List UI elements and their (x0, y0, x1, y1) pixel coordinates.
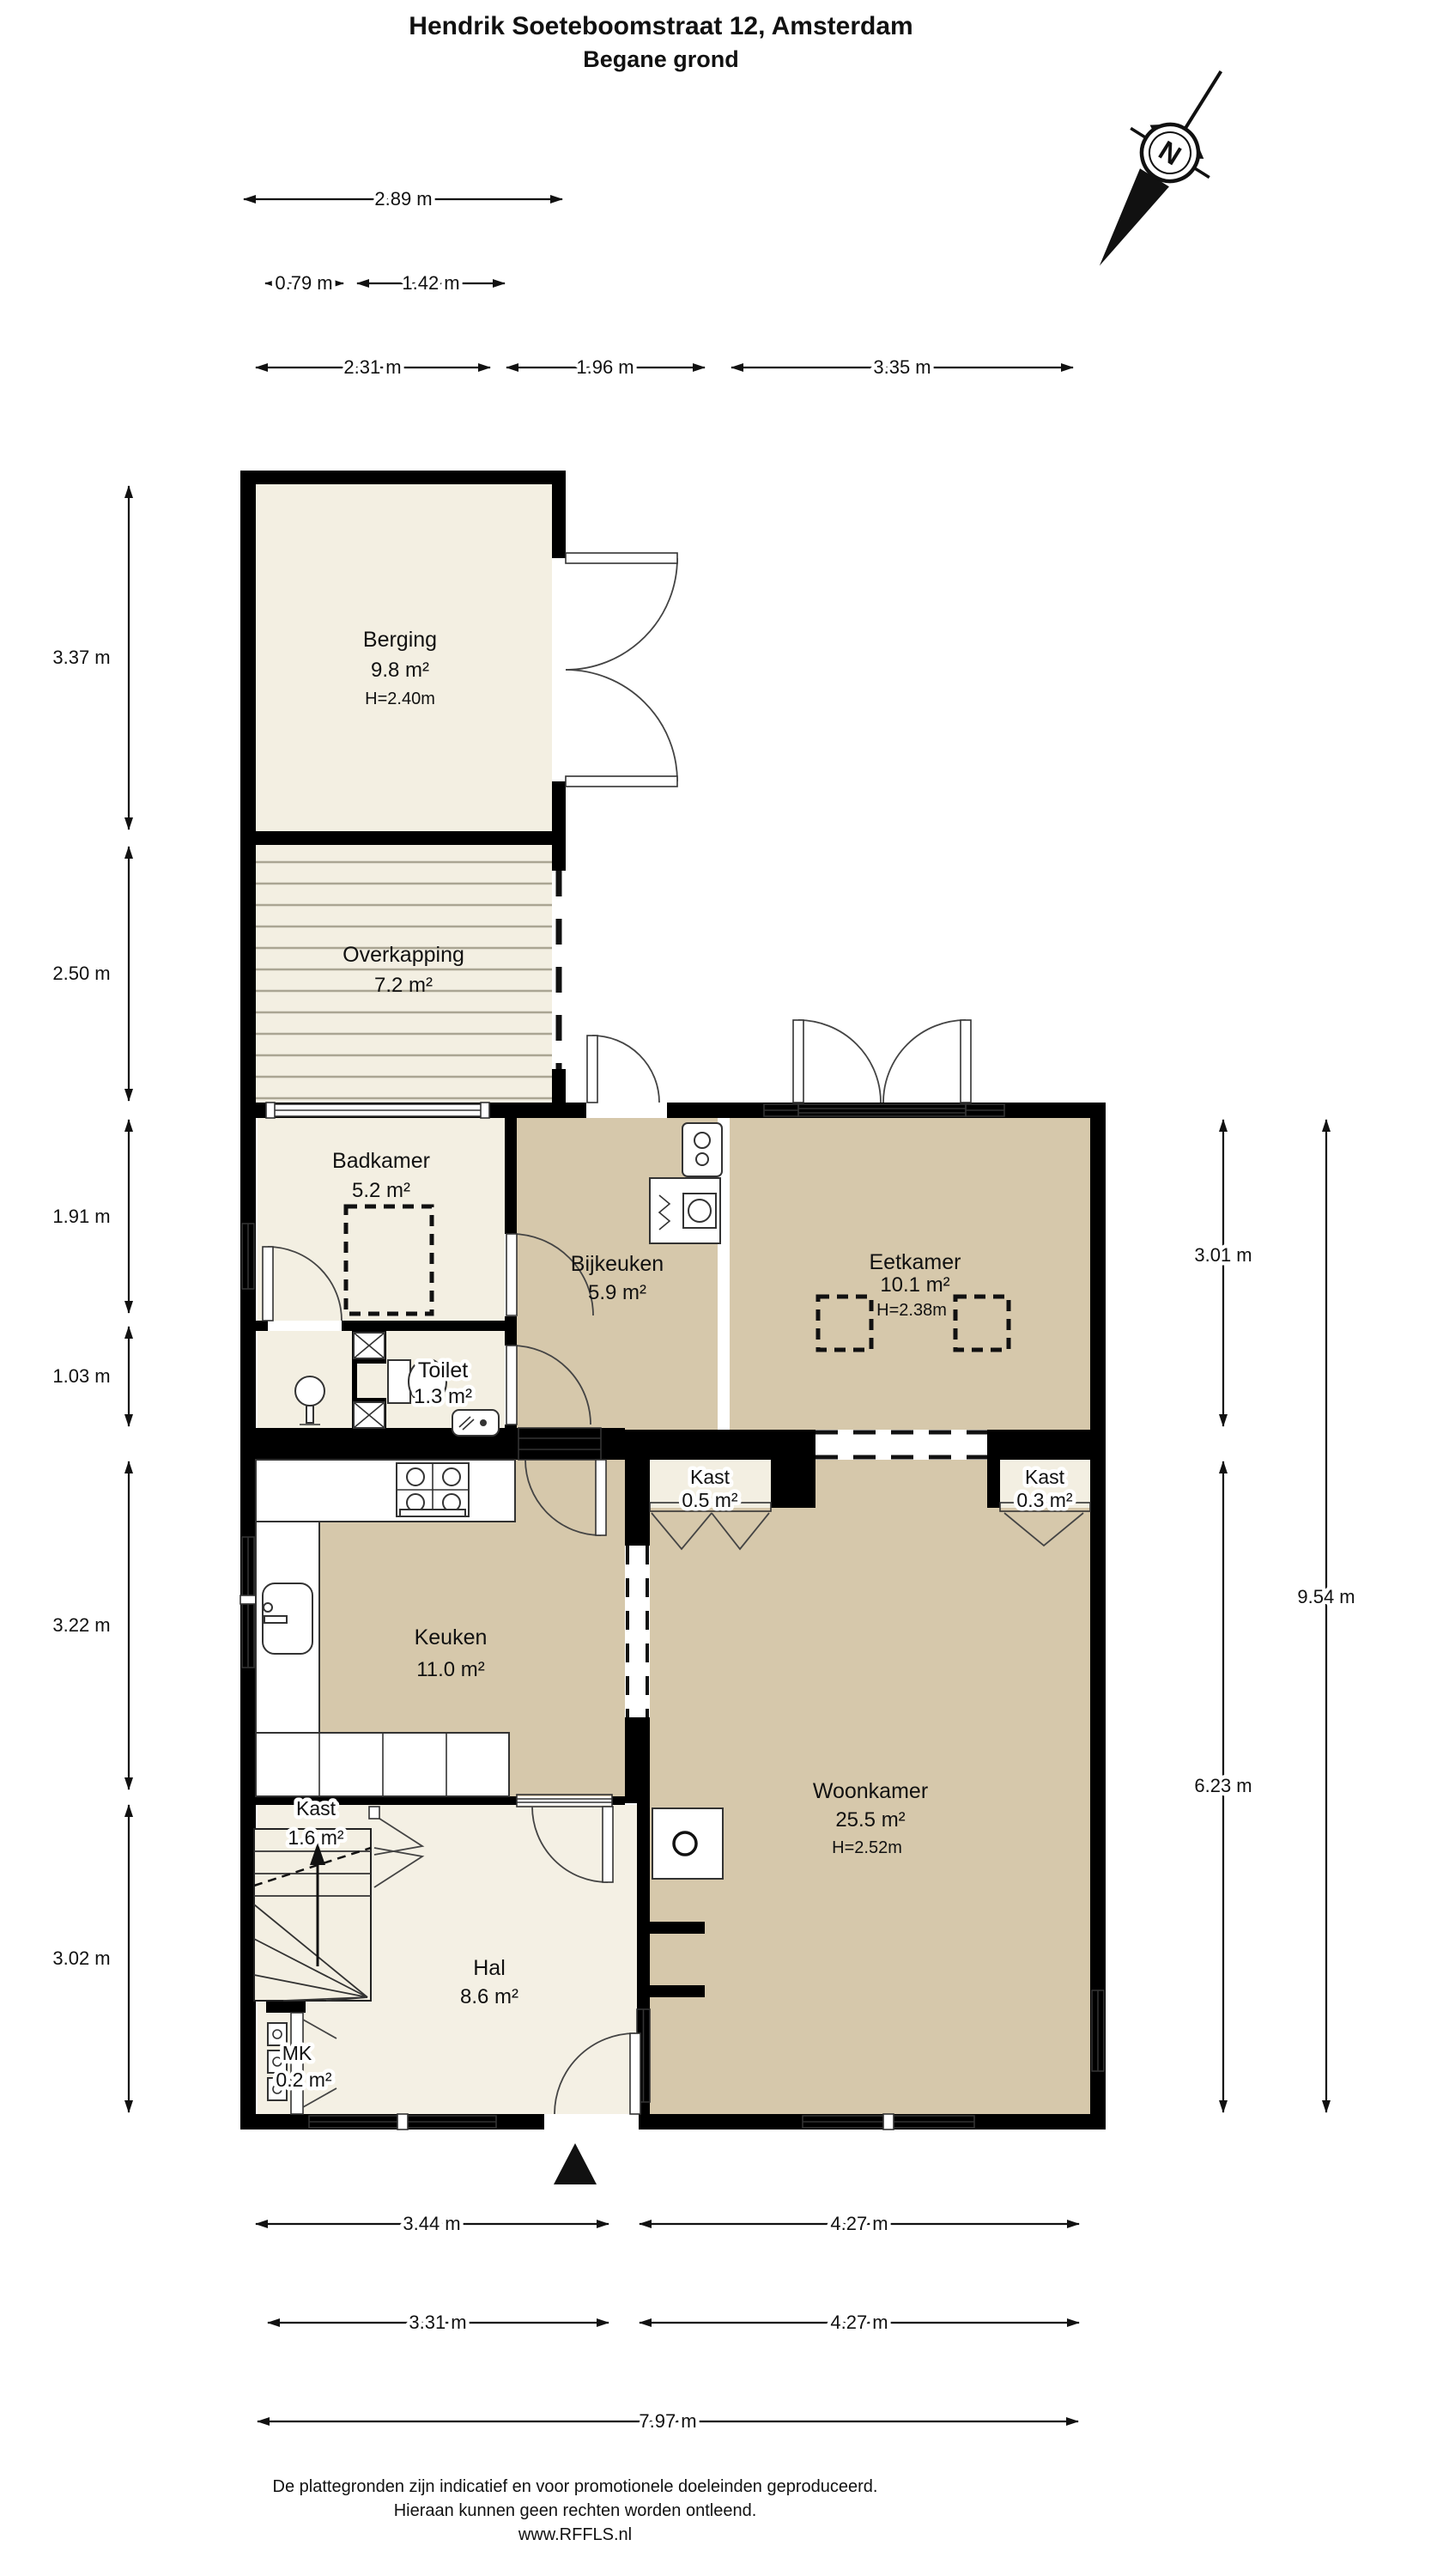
footer: De plattegronden zijn indicatief en voor… (273, 2477, 878, 2544)
dim-label: 3.35 m (873, 356, 931, 378)
dim-label: 3.22 m (52, 1614, 110, 1636)
berging-floor (256, 484, 552, 831)
door-sill (517, 1795, 612, 1807)
dim-label: 0.79 m (275, 272, 332, 294)
hal-area-label: 8.6 m² (460, 1985, 518, 2008)
wall-segment (771, 1460, 815, 1508)
berging-area-label: 9.8 m² (371, 659, 429, 682)
dim-label: 3.02 m (52, 1947, 110, 1969)
sink-icon (263, 1583, 312, 1654)
meterkast-area-label: 0.2 m² (276, 2069, 332, 2091)
eetkamer-area-label: 10.1 m² (880, 1273, 949, 1297)
badkamer-name-label: Badkamer (332, 1149, 430, 1173)
dim-label: 2.50 m (52, 963, 110, 984)
door-swing (587, 1036, 659, 1103)
dim-label: 1.96 m (576, 356, 634, 378)
wall-stub (650, 1985, 705, 1997)
kast-woonkamer-area-label: 0.3 m² (1016, 1489, 1073, 1511)
wall-segment (612, 1796, 625, 1805)
woonkamer-area-label: 25.5 m² (835, 1808, 905, 1832)
french-doors-eetkamer (793, 1020, 971, 1103)
window (266, 1103, 489, 1118)
footer-disclaimer-line1: De plattegronden zijn indicatief en voor… (273, 2477, 878, 2496)
front-door-opening (544, 2114, 639, 2129)
footer-website: www.RFFLS.nl (518, 2525, 632, 2544)
dim-label: 1.42 m (402, 272, 459, 294)
kast-woonkamer-name-label: Kast (1025, 1466, 1065, 1488)
kast-keuken-name-label: Kast (690, 1466, 731, 1488)
wall-segment (987, 1460, 1000, 1508)
double-door-berging (566, 553, 677, 787)
berging-height-label: H=2.40m (365, 690, 435, 708)
badkamer-area-label: 5.2 m² (352, 1179, 410, 1202)
kast-keuken-area-label: 0.5 m² (682, 1489, 738, 1511)
overkapping-area-label: 7.2 m² (374, 974, 433, 997)
counter (256, 1460, 515, 1522)
stairs (254, 1829, 371, 2001)
boiler-icon (682, 1123, 722, 1176)
page-subtitle: Begane grond (583, 46, 739, 72)
meterkast-name-label: MK (282, 2042, 312, 2064)
dim-label: 2.31 m (343, 356, 401, 378)
dim-label: 4.27 m (830, 2312, 888, 2333)
door-opening (268, 1321, 342, 1331)
compass-icon: N (1060, 46, 1260, 290)
berging-name-label: Berging (363, 628, 437, 652)
woonkamer-height-label: H=2.52m (832, 1838, 902, 1857)
dashed-opening (815, 1430, 987, 1460)
wall-segment (552, 471, 566, 558)
floorplan-page: Hendrik Soeteboomstraat 12, Amsterdam Be… (0, 0, 1449, 2576)
overkapping-name-label: Overkapping (343, 943, 464, 967)
toilet-name-label: Toilet (418, 1358, 468, 1382)
wall-segment (240, 471, 566, 484)
eetkamer-name-label: Eetkamer (870, 1250, 961, 1274)
dim-label: 9.54 m (1297, 1586, 1355, 1607)
dashed-opening (625, 1546, 650, 1717)
wall-segment (240, 831, 566, 845)
window (309, 2114, 496, 2129)
dim-label: 2.89 m (374, 188, 432, 210)
bijkeuken-area-label: 5.9 m² (588, 1281, 646, 1304)
dim-label: 1.03 m (52, 1365, 110, 1387)
hob-icon (397, 1463, 469, 1516)
woonkamer-name-label: Woonkamer (813, 1779, 928, 1803)
dim-label: 3.01 m (1194, 1244, 1252, 1266)
window (240, 1537, 256, 1668)
window (803, 2114, 974, 2129)
eetkamer-height-label: H=2.38m (876, 1301, 947, 1320)
bijkeuken-name-label: Bijkeuken (571, 1252, 664, 1276)
stove-icon (652, 1808, 723, 1879)
door-opening (586, 1103, 667, 1118)
washer-icon (650, 1178, 720, 1243)
dim-label: 1.91 m (52, 1206, 110, 1227)
wall-segment (987, 1430, 1090, 1460)
dim-label: 3.44 m (403, 2213, 460, 2234)
hal-name-label: Hal (473, 1956, 506, 1980)
dim-label: 6.23 m (1194, 1775, 1252, 1796)
page-title: Hendrik Soeteboomstraat 12, Amsterdam (409, 12, 912, 40)
entrance-arrow-icon (554, 2143, 597, 2184)
dim-label: 3.31 m (409, 2312, 466, 2333)
handwash-icon (452, 1410, 499, 1436)
keuken-area-label: 11.0 m² (416, 1658, 485, 1681)
wall-segment (242, 1428, 625, 1460)
wall-segment (242, 1796, 517, 1805)
kast-trap-name-label: Kast (296, 1797, 336, 1820)
toilet-area-label: 1.3 m² (414, 1385, 472, 1408)
shaft-icon (354, 1333, 386, 1428)
footer-disclaimer-line2: Hieraan kunnen geen rechten worden ontle… (394, 2501, 757, 2520)
wall-stub (650, 1922, 705, 1934)
wall-segment (552, 845, 566, 871)
dim-label: 3.37 m (52, 647, 110, 668)
keuken-name-label: Keuken (415, 1625, 488, 1649)
dim-label: 7.97 m (639, 2410, 696, 2432)
floorplan-svg: Hendrik Soeteboomstraat 12, Amsterdam Be… (0, 0, 1449, 2576)
woonkamer-floor (650, 1430, 1090, 2114)
dim-label: 4.27 m (830, 2213, 888, 2234)
wall-segment (625, 1430, 815, 1460)
wall-right (1090, 1103, 1106, 2129)
kast-trap-area-label: 1.6 m² (288, 1826, 344, 1849)
